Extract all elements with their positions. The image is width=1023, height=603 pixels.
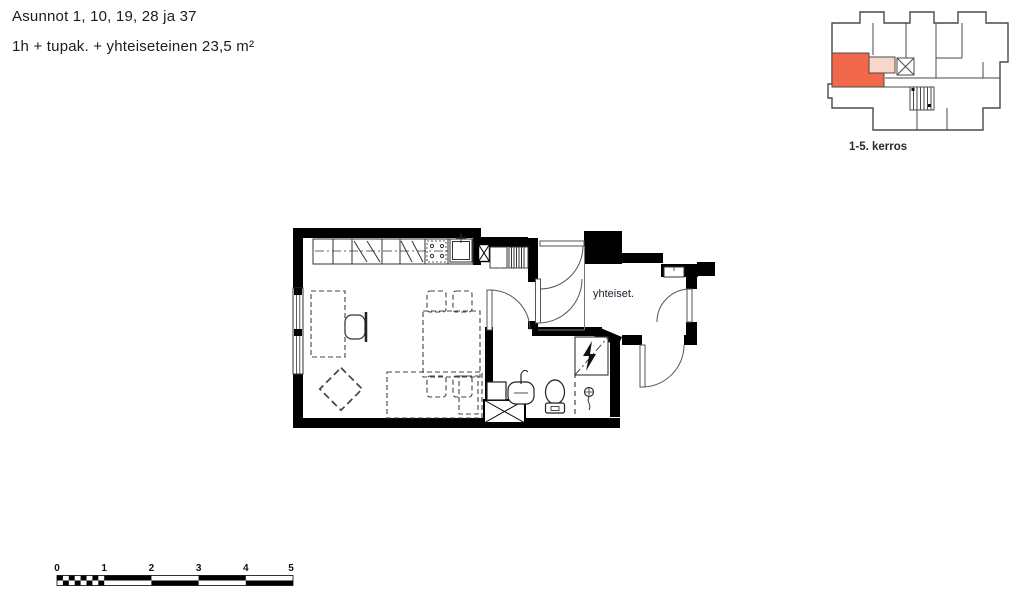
hall-bottom-door [640, 345, 684, 387]
scale-label: 1 [101, 563, 107, 574]
washbasin [508, 370, 534, 404]
partition-lines [538, 246, 585, 330]
washing-machine [487, 382, 506, 400]
room-door [536, 279, 583, 323]
page-subtitle: 1h + tupak. + yhteiseteinen 23,5 m² [12, 38, 254, 55]
dining-table [423, 311, 480, 377]
highlighted-hall [869, 57, 895, 73]
pillow [459, 376, 478, 414]
page-title: Asunnot 1, 10, 19, 28 ja 37 [12, 8, 197, 25]
key-plan-caption: 1-5. kerros [849, 141, 907, 153]
scale-label: 4 [243, 563, 249, 574]
floor-plan-page: Asunnot 1, 10, 19, 28 ja 37 1h + tupak. … [0, 0, 1023, 603]
bathroom [484, 337, 610, 423]
chair [453, 291, 472, 312]
apartment-plan: yhteiset. [293, 228, 715, 428]
chair [427, 376, 446, 397]
armchair [320, 368, 362, 410]
chair [453, 376, 472, 397]
scale-label: 3 [196, 563, 202, 574]
shower [575, 373, 610, 417]
bathroom-door [487, 290, 530, 330]
kitchen-end-units [479, 245, 529, 269]
scale-bar: 0 1 2 3 4 5 [54, 563, 294, 586]
key-plan: 1-5. kerros [828, 12, 1008, 153]
scale-label: 5 [288, 563, 294, 574]
tall-cabinet [490, 247, 507, 268]
furniture [311, 291, 482, 418]
hall-right-door [657, 289, 692, 322]
electrical-cabinet [575, 337, 608, 375]
scale-bar-labels: 0 1 2 3 4 5 [54, 563, 294, 574]
toilet [546, 380, 565, 413]
bed [387, 372, 482, 418]
dishwasher-symbol [401, 241, 423, 262]
coat-rack-hatch [509, 247, 528, 268]
chair [427, 291, 446, 312]
scale-label: 0 [54, 563, 60, 574]
room-label: yhteiset. [593, 288, 634, 300]
stove-symbol [427, 241, 446, 262]
elevator-symbol [897, 58, 914, 75]
entry-door [540, 241, 584, 289]
desk [311, 291, 345, 357]
floor-plan-canvas: yhteiset. [0, 0, 1023, 603]
desk-chair [345, 312, 366, 342]
scale-label: 2 [149, 563, 155, 574]
window [293, 288, 303, 374]
fridge-symbol [354, 241, 380, 262]
